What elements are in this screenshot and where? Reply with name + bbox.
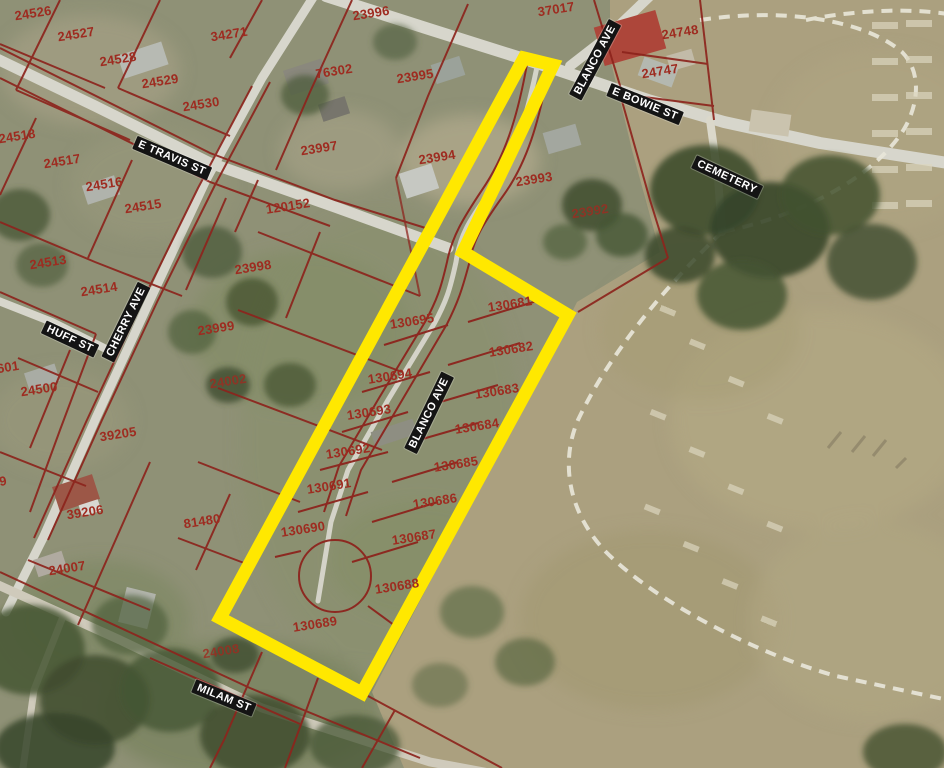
aerial-imagery bbox=[0, 0, 944, 768]
aerial-parcel-map[interactable]: 24526 24527 24528 34271 24529 24530 2399… bbox=[0, 0, 944, 768]
